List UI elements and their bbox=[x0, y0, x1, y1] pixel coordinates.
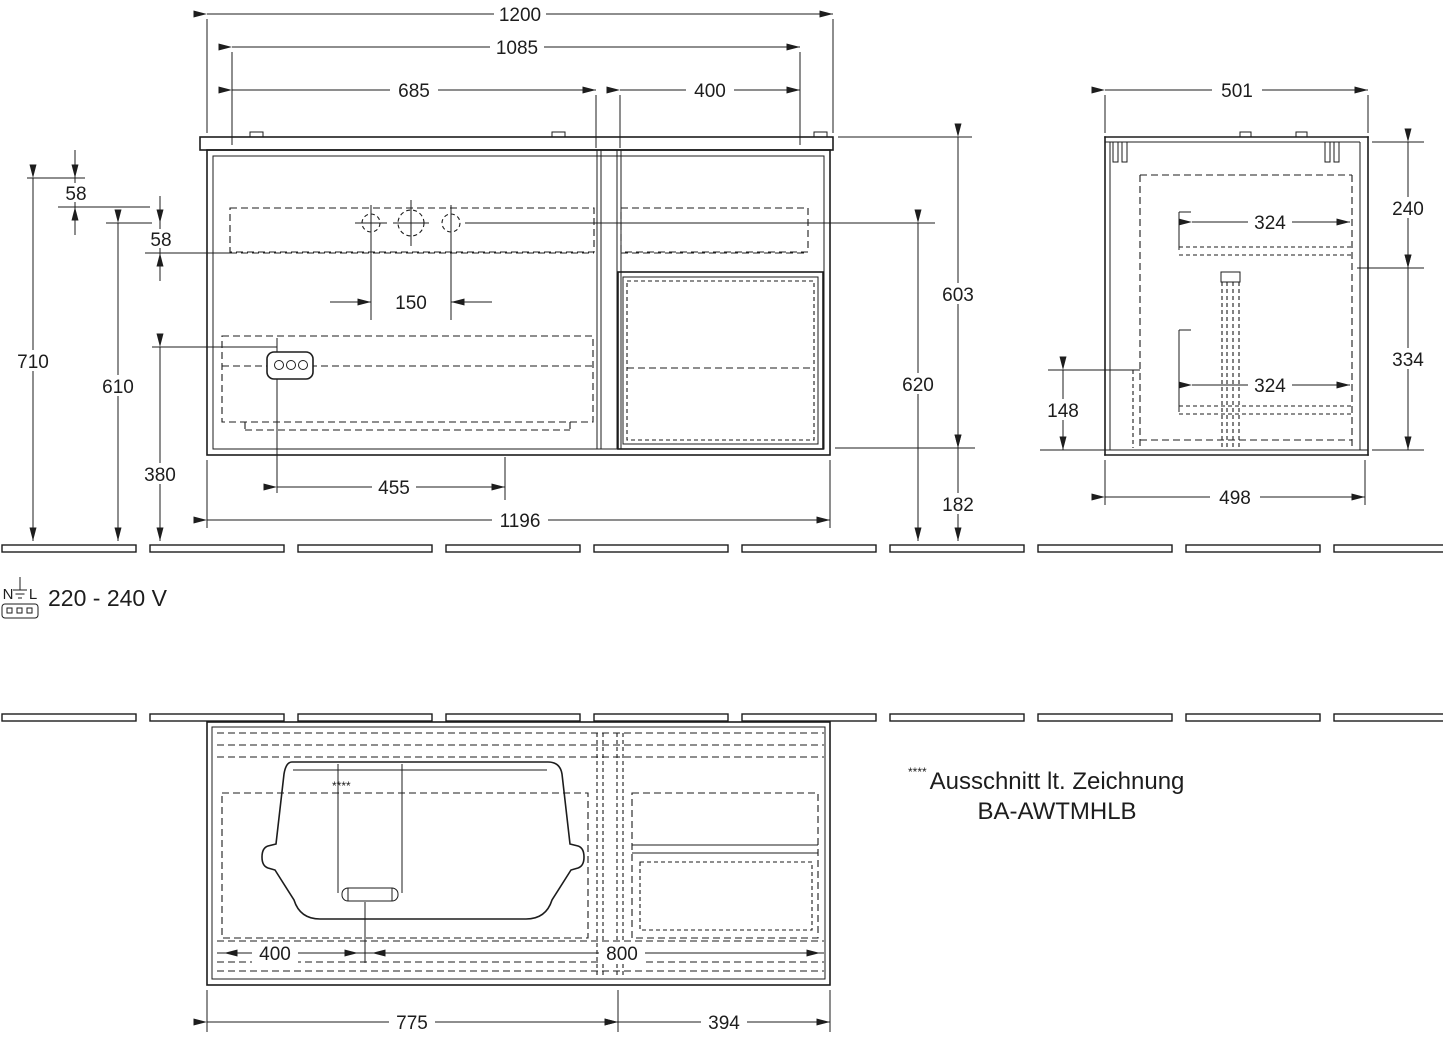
cabinet-body bbox=[207, 150, 830, 455]
dim-hole-spacing: 150 bbox=[395, 293, 427, 314]
earth-ground-icon bbox=[13, 577, 27, 598]
plan-internal-dimensions: 400 800 bbox=[217, 902, 824, 965]
dim-plan-width-left: 775 bbox=[396, 1013, 428, 1034]
cutout-note: **** Ausschnitt lt. Zeichnung BA-AWTMHLB bbox=[908, 765, 1184, 825]
dim-shelf-depth-lower: 324 bbox=[1254, 376, 1286, 397]
dim-width-right: 400 bbox=[694, 81, 726, 102]
wall-section-line-lower bbox=[2, 714, 1443, 721]
terminal-l-label: L bbox=[29, 586, 37, 603]
note-marker: **** bbox=[908, 765, 927, 779]
countertop bbox=[200, 137, 833, 150]
dim-bottom-gap: 182 bbox=[942, 495, 974, 516]
front-view bbox=[106, 132, 935, 493]
mounting-brackets bbox=[1113, 142, 1339, 162]
dim-depth-total: 501 bbox=[1221, 81, 1253, 102]
dim-body-width: 1196 bbox=[500, 511, 541, 532]
dim-height-lower: 334 bbox=[1392, 350, 1424, 371]
dim-height-plinth: 148 bbox=[1047, 401, 1079, 422]
note-line1: Ausschnitt lt. Zeichnung bbox=[930, 768, 1185, 795]
basin-cutout-marker: **** bbox=[332, 779, 351, 793]
dim-center-offset: 800 bbox=[606, 944, 638, 965]
dim-offset-top: 58 bbox=[65, 184, 86, 205]
dim-height-socket: 380 bbox=[144, 465, 176, 486]
dim-width-inner: 1085 bbox=[496, 38, 538, 59]
note-line2: BA-AWTMHLB bbox=[977, 798, 1136, 825]
dim-height-total: 710 bbox=[17, 352, 49, 373]
side-view: 501 324 bbox=[1040, 80, 1431, 509]
open-compartment bbox=[618, 272, 823, 449]
plan-view: **** 400 800 775 394 bbox=[207, 722, 830, 1034]
wall-section-line-upper bbox=[2, 545, 1443, 552]
electrical-connection-symbol: N L 220 - 240 V bbox=[2, 577, 168, 618]
dim-plan-width-right: 394 bbox=[708, 1013, 740, 1034]
drain-slot bbox=[342, 888, 398, 901]
dim-drawer-width: 455 bbox=[378, 478, 410, 499]
basin-cutout-outline: **** bbox=[262, 762, 584, 919]
dim-height-hole-floor: 620 bbox=[902, 375, 934, 396]
dim-offset-hole: 58 bbox=[150, 230, 171, 251]
terminal-n-label: N bbox=[3, 586, 14, 603]
voltage-label: 220 - 240 V bbox=[48, 585, 168, 611]
dim-basin-offset: 400 bbox=[259, 944, 291, 965]
upper-drawer-hidden bbox=[230, 208, 594, 252]
technical-drawing-page: 1200 1085 685 400 58 58 710 bbox=[0, 0, 1443, 1038]
dim-height-hole: 610 bbox=[102, 377, 134, 398]
dim-depth-bottom: 498 bbox=[1219, 488, 1251, 509]
dim-width-left: 685 bbox=[398, 81, 430, 102]
dim-height-right-top: 603 bbox=[942, 285, 974, 306]
front-dimensions: 1200 1085 685 400 58 58 710 bbox=[12, 4, 982, 541]
dim-width-total: 1200 bbox=[499, 5, 541, 26]
dim-shelf-depth-upper: 324 bbox=[1254, 213, 1286, 234]
vanity-dimension-drawing: 1200 1085 685 400 58 58 710 bbox=[0, 0, 1443, 1038]
drawer-back-panel bbox=[1221, 272, 1240, 448]
dim-height-upper: 240 bbox=[1392, 199, 1424, 220]
